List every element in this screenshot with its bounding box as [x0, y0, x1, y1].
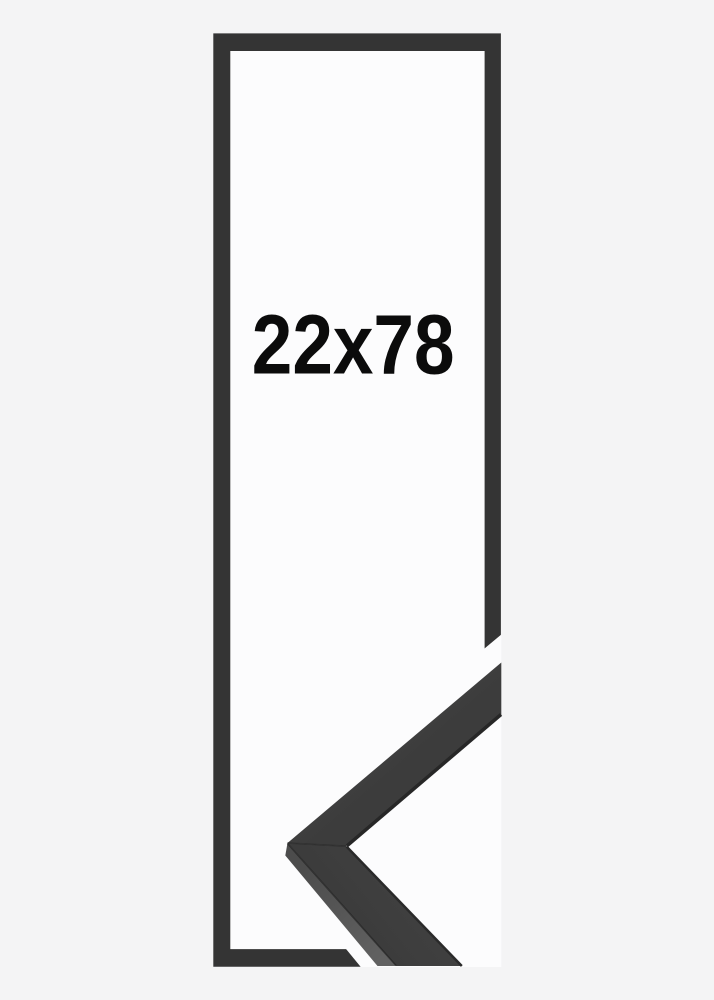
- svg-text:22x78: 22x78: [252, 298, 455, 392]
